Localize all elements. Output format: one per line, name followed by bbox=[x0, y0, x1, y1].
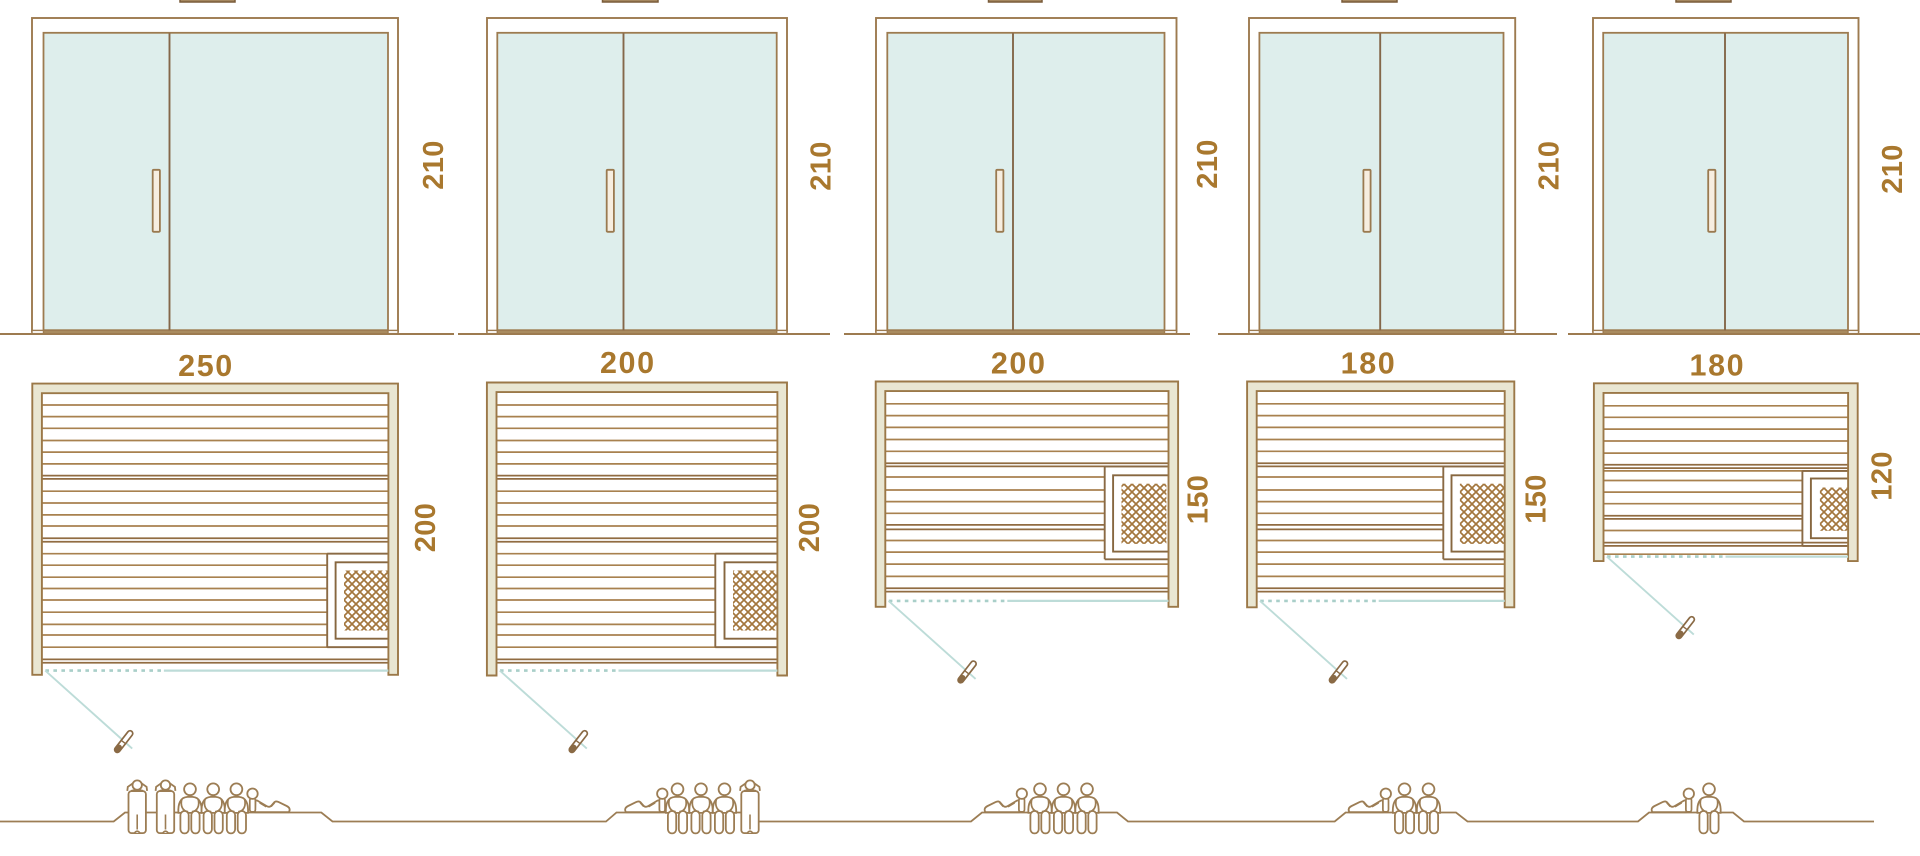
svg-text:200: 200 bbox=[794, 503, 826, 553]
svg-text:210: 210 bbox=[1192, 139, 1224, 189]
svg-text:200: 200 bbox=[410, 503, 442, 553]
svg-text:210: 210 bbox=[806, 141, 838, 191]
svg-text:200: 200 bbox=[991, 347, 1047, 381]
svg-text:200: 200 bbox=[600, 346, 656, 380]
svg-text:250: 250 bbox=[178, 349, 234, 383]
svg-text:180: 180 bbox=[1690, 348, 1746, 382]
svg-text:180: 180 bbox=[1341, 347, 1397, 381]
svg-text:150: 150 bbox=[1183, 475, 1215, 525]
svg-text:210: 210 bbox=[418, 140, 450, 190]
svg-text:210: 210 bbox=[1533, 141, 1565, 191]
svg-text:120: 120 bbox=[1867, 451, 1899, 501]
svg-text:210: 210 bbox=[1877, 144, 1909, 194]
svg-text:150: 150 bbox=[1521, 474, 1553, 524]
